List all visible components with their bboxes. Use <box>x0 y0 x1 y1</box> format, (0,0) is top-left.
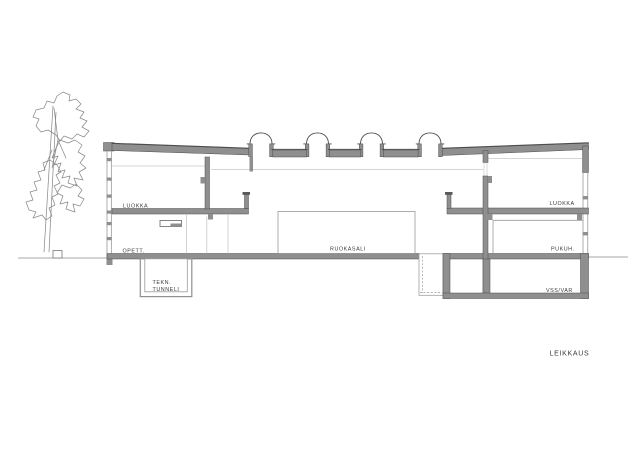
left-mezzanine-riser <box>245 195 249 209</box>
skylight-4 <box>416 133 444 157</box>
label-tech-tunnel-2: TUNNELI <box>153 287 180 293</box>
tree-canopy-mid <box>52 140 86 186</box>
left-wall-transom <box>107 222 112 225</box>
roof-slab-between <box>273 150 307 157</box>
label-shelter-storage: VSS/VAR <box>546 288 573 294</box>
roofs <box>104 143 589 173</box>
right-inner-wall-top <box>483 151 488 163</box>
skylight-side-wall <box>439 144 443 157</box>
interior-detail <box>160 212 583 254</box>
right-mezzanine-cap <box>445 192 453 195</box>
label-tech-tunnel-1: TEKN. <box>153 280 172 286</box>
skylight-dome <box>416 133 444 144</box>
label-dressing-room: PUKUH. <box>551 247 575 253</box>
upper-floor-slab-right <box>447 208 589 214</box>
skylight-3 <box>357 133 385 157</box>
section-canvas: TEKN. TUNNELI LUOKKA OPETT. RUOKASALI LU… <box>0 0 640 452</box>
roof-slab-between <box>383 150 418 157</box>
skylight-dome <box>357 133 385 144</box>
right-slab-stub-b <box>577 214 582 220</box>
label-dining-hall: RUOKASALI <box>330 247 366 253</box>
basement-wall-mid <box>483 259 490 293</box>
right-wall-transom <box>583 196 588 199</box>
skylight-dome <box>303 133 331 144</box>
left-wall-transom <box>107 158 112 161</box>
basement-wall-right <box>581 254 589 299</box>
fixture-fill <box>171 224 182 227</box>
room-labels: LUOKKA OPETT. RUOKASALI LUOKKA PUKUH. VS… <box>123 201 575 294</box>
architectural-section-drawing: TEKN. TUNNELI LUOKKA OPETT. RUOKASALI LU… <box>0 0 640 452</box>
right-roof-slab <box>442 143 589 156</box>
label-right-classroom: LUOKKA <box>550 201 575 207</box>
left-mezzanine-cap <box>243 192 251 195</box>
interior-walls <box>201 151 583 298</box>
ceiling-lines <box>112 159 582 170</box>
left-wall-transom <box>107 237 112 240</box>
skylight-side-wall <box>249 144 253 157</box>
left-inner-wall-notch <box>201 177 206 184</box>
skylight-2 <box>303 133 331 157</box>
label-left-classroom: LUOKKA <box>123 204 148 210</box>
left-wall-transom <box>107 211 112 214</box>
tree-trunk <box>44 106 56 252</box>
tree-canopy-lower-left <box>26 160 61 220</box>
right-wall-transom <box>583 232 588 235</box>
right-slab-stub-a <box>488 214 493 220</box>
right-mezzanine-riser <box>447 195 451 209</box>
skylights <box>247 133 444 157</box>
ground-floor-slab-right <box>443 254 589 260</box>
tree-sketch <box>26 92 89 252</box>
right-inner-wall-step <box>488 176 492 183</box>
tech-tunnel: TEKN. TUNNELI <box>140 259 192 297</box>
left-wall-transom <box>107 195 112 198</box>
basement-wall-left <box>443 254 450 299</box>
left-roof-slab <box>112 144 250 156</box>
drawing-title: LEIKKAUS <box>550 351 590 358</box>
ground-floor-slab-hall <box>107 254 419 260</box>
tree-canopy-upper <box>33 92 89 141</box>
skylight-1 <box>247 133 275 157</box>
tree-canopy-lower-right <box>57 184 84 212</box>
left-wall-transom <box>107 178 112 181</box>
label-teachers-room: OPETT. <box>123 249 145 255</box>
roof-slab-between <box>329 150 360 157</box>
skylight-dome <box>247 133 275 144</box>
left-inner-wall <box>205 157 210 209</box>
left-slab-stub <box>208 214 213 220</box>
hall-left-mullion <box>250 157 254 172</box>
ground-post <box>53 251 62 259</box>
